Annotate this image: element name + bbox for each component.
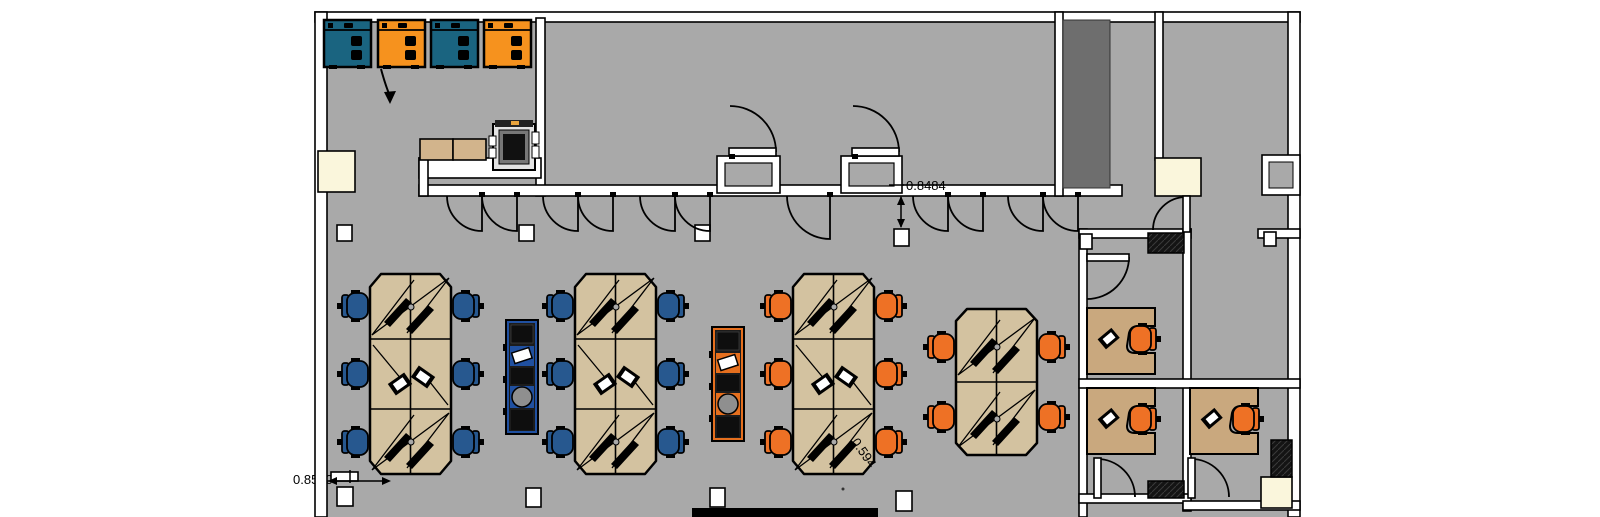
cream-fixture-left [318,151,355,192]
column [526,488,541,507]
counter-cabinet [453,139,486,160]
private-office-desk-1 [1087,308,1161,374]
door-leaf-office-1 [1087,254,1129,261]
reception-counter-return [419,158,428,196]
column [894,229,909,246]
workstation-cluster-6-blue-2 [542,274,689,474]
column [1080,234,1092,249]
wall-vertical-right [1155,12,1163,160]
column [337,487,353,506]
vestibule-1-opening [725,163,772,186]
storage-cabinet-orange-2 [484,20,531,69]
door-leaf-office-3 [1188,458,1195,498]
door-leaf-office-2 [1094,458,1101,498]
wall-office-middle [1079,379,1300,388]
column [695,225,710,241]
column [519,225,534,241]
service-shaft [1063,20,1110,188]
office-cabinet [1148,233,1184,253]
copier [489,120,539,170]
floor-plan-drawing: 0.8500 [0,0,1600,517]
wall-office-left [1079,229,1087,517]
private-office-desk-3 [1190,388,1264,454]
storage-cabinet-teal-2 [431,20,478,69]
workstation-cluster-6-blue-1 [337,274,484,474]
column [1264,232,1276,246]
storage-cabinet-orange-1 [378,20,425,69]
office-cabinet [1148,481,1184,498]
counter-cabinet [420,139,453,160]
door-leaf-vestibule-1 [729,148,776,156]
wall-left [315,12,327,517]
door-leaf-vestibule-2 [852,148,899,156]
storage-unit-orange [709,327,744,441]
cream-fixture-top-right [1155,158,1201,196]
workstation-cluster-6-orange [760,274,907,474]
office-cabinet [1271,440,1292,477]
column [896,491,912,511]
wall-shaft-left [1055,12,1063,196]
column [337,225,352,241]
cream-fixture-bottom-right [1261,477,1292,508]
niche-opening [1269,162,1293,188]
bottom-wall-segment [692,508,878,517]
storage-cabinet-teal-1 [324,20,371,69]
floor-plan-canvas: 0.8500 [0,0,1600,517]
dimension-label-wall-offset: 0.8484 [906,178,946,193]
column [710,488,725,507]
private-office-desk-2 [1087,388,1161,454]
door-leaf-corridor-right [1183,196,1190,232]
storage-unit-blue [503,320,538,434]
vestibule-2-opening [849,163,894,186]
